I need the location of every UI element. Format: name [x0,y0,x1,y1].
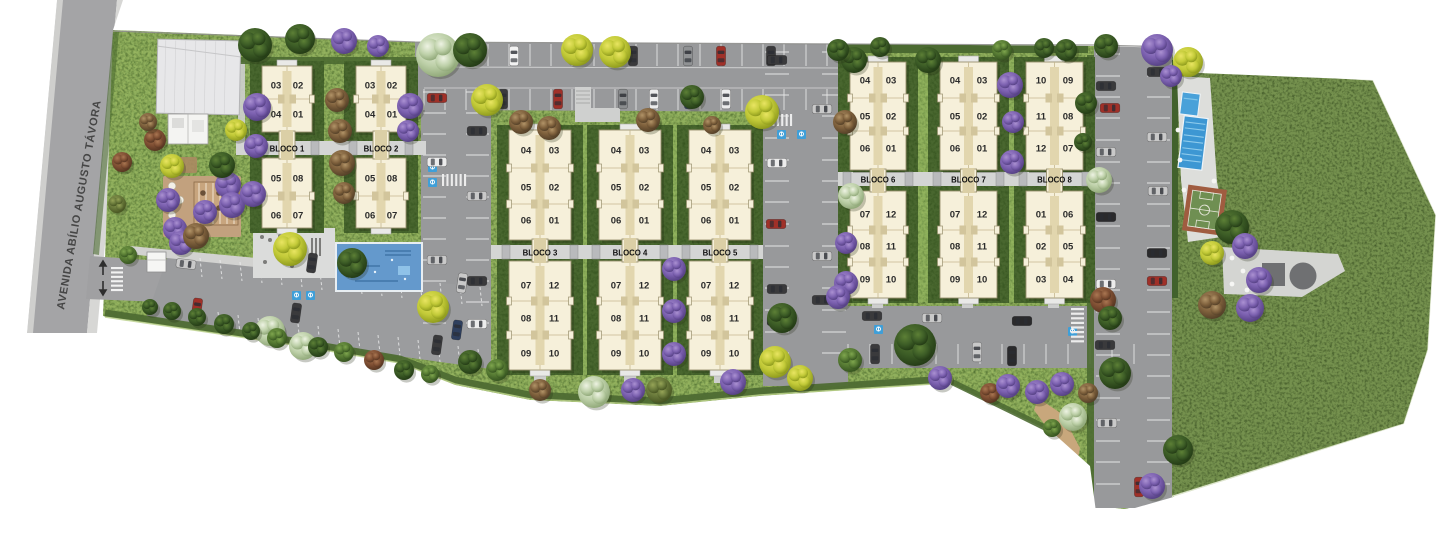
svg-text:06: 06 [950,144,961,155]
svg-text:01: 01 [639,216,650,227]
svg-text:09: 09 [1063,76,1074,87]
svg-text:04: 04 [611,146,622,157]
svg-text:08: 08 [293,174,304,185]
svg-text:07: 07 [701,281,712,292]
svg-text:08: 08 [701,314,712,325]
svg-text:01: 01 [729,216,740,227]
svg-text:05: 05 [1063,242,1074,253]
svg-text:05: 05 [860,112,871,123]
svg-text:08: 08 [387,174,398,185]
svg-text:01: 01 [549,216,560,227]
svg-text:09: 09 [950,275,961,286]
svg-text:03: 03 [977,76,988,87]
svg-text:10: 10 [886,275,897,286]
svg-text:06: 06 [860,144,871,155]
svg-text:05: 05 [611,183,622,194]
svg-text:09: 09 [701,349,712,360]
svg-text:07: 07 [521,281,532,292]
svg-text:12: 12 [977,210,988,221]
svg-text:01: 01 [387,110,398,121]
svg-text:12: 12 [549,281,560,292]
svg-text:08: 08 [521,314,532,325]
svg-text:05: 05 [950,112,961,123]
svg-text:09: 09 [611,349,622,360]
svg-text:01: 01 [293,110,304,121]
svg-text:BLOCO 6: BLOCO 6 [861,176,896,185]
svg-text:06: 06 [1063,210,1074,221]
svg-text:10: 10 [977,275,988,286]
svg-text:08: 08 [611,314,622,325]
svg-text:03: 03 [1036,275,1047,286]
svg-text:02: 02 [293,81,304,92]
svg-text:11: 11 [886,242,897,253]
svg-text:02: 02 [549,183,560,194]
svg-text:BLOCO 4: BLOCO 4 [613,249,648,258]
svg-text:02: 02 [977,112,988,123]
svg-text:06: 06 [611,216,622,227]
svg-text:BLOCO 1: BLOCO 1 [270,145,305,154]
svg-text:08: 08 [950,242,961,253]
svg-text:12: 12 [1036,144,1047,155]
svg-text:09: 09 [521,349,532,360]
svg-text:01: 01 [1036,210,1047,221]
svg-text:04: 04 [365,110,376,121]
svg-text:12: 12 [886,210,897,221]
svg-text:04: 04 [1063,275,1074,286]
svg-text:10: 10 [639,349,650,360]
svg-text:10: 10 [729,349,740,360]
svg-text:05: 05 [521,183,532,194]
svg-text:03: 03 [365,81,376,92]
svg-text:06: 06 [701,216,712,227]
svg-text:12: 12 [639,281,650,292]
svg-text:BLOCO 7: BLOCO 7 [951,176,986,185]
svg-text:02: 02 [387,81,398,92]
svg-text:07: 07 [950,210,961,221]
svg-text:BLOCO 5: BLOCO 5 [703,249,738,258]
svg-text:07: 07 [860,210,871,221]
svg-text:05: 05 [365,174,376,185]
svg-text:11: 11 [729,314,740,325]
svg-text:BLOCO 3: BLOCO 3 [523,249,558,258]
svg-text:07: 07 [387,211,398,222]
svg-text:08: 08 [1063,112,1074,123]
svg-text:03: 03 [271,81,282,92]
svg-text:02: 02 [639,183,650,194]
svg-text:03: 03 [886,76,897,87]
svg-text:10: 10 [549,349,560,360]
svg-text:11: 11 [549,314,560,325]
svg-text:06: 06 [271,211,282,222]
svg-text:BLOCO 2: BLOCO 2 [364,145,399,154]
svg-text:11: 11 [977,242,988,253]
svg-text:03: 03 [639,146,650,157]
svg-text:05: 05 [271,174,282,185]
svg-text:11: 11 [1036,112,1047,123]
svg-text:12: 12 [729,281,740,292]
svg-text:07: 07 [1063,144,1074,155]
svg-text:02: 02 [886,112,897,123]
svg-text:03: 03 [549,146,560,157]
svg-text:07: 07 [293,211,304,222]
svg-text:01: 01 [977,144,988,155]
svg-text:10: 10 [1036,76,1047,87]
svg-text:06: 06 [365,211,376,222]
svg-text:07: 07 [611,281,622,292]
svg-text:08: 08 [860,242,871,253]
svg-text:03: 03 [729,146,740,157]
svg-text:04: 04 [701,146,712,157]
svg-text:01: 01 [886,144,897,155]
svg-text:02: 02 [1036,242,1047,253]
svg-text:04: 04 [860,76,871,87]
svg-text:02: 02 [729,183,740,194]
svg-text:04: 04 [521,146,532,157]
svg-text:BLOCO 8: BLOCO 8 [1037,176,1072,185]
svg-text:04: 04 [950,76,961,87]
svg-text:05: 05 [701,183,712,194]
svg-text:11: 11 [639,314,650,325]
svg-text:06: 06 [521,216,532,227]
svg-text:09: 09 [860,275,871,286]
